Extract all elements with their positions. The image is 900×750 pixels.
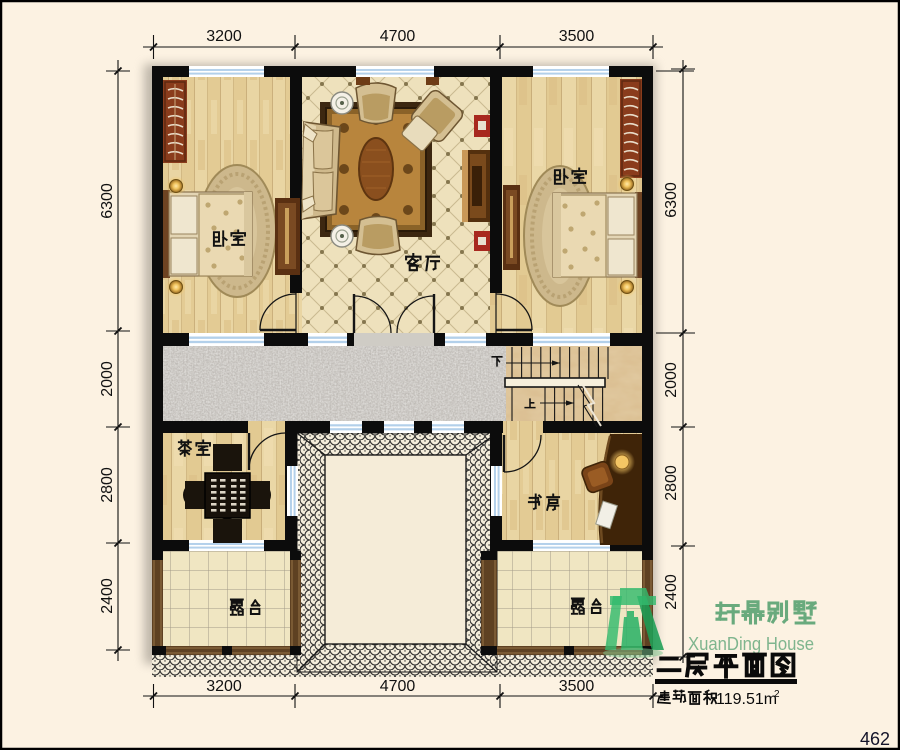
svg-text:3200: 3200 (206, 678, 242, 695)
svg-text:2000: 2000 (663, 362, 680, 398)
svg-text:2800: 2800 (663, 465, 680, 501)
svg-text:462: 462 (860, 729, 890, 749)
svg-text:6300: 6300 (663, 182, 680, 218)
svg-text:2400: 2400 (99, 578, 116, 614)
svg-text:XuanDing House: XuanDing House (688, 634, 814, 654)
svg-text:3500: 3500 (559, 678, 595, 695)
svg-text:6300: 6300 (99, 183, 116, 219)
svg-text:2800: 2800 (99, 467, 116, 503)
svg-text:2: 2 (774, 689, 780, 700)
svg-text:4700: 4700 (380, 678, 416, 695)
svg-text:119.51m: 119.51m (716, 691, 777, 708)
svg-text:3200: 3200 (206, 28, 242, 45)
svg-text:4700: 4700 (380, 28, 416, 45)
svg-text:3500: 3500 (559, 28, 595, 45)
svg-text:2400: 2400 (663, 574, 680, 610)
svg-text:2000: 2000 (99, 361, 116, 397)
